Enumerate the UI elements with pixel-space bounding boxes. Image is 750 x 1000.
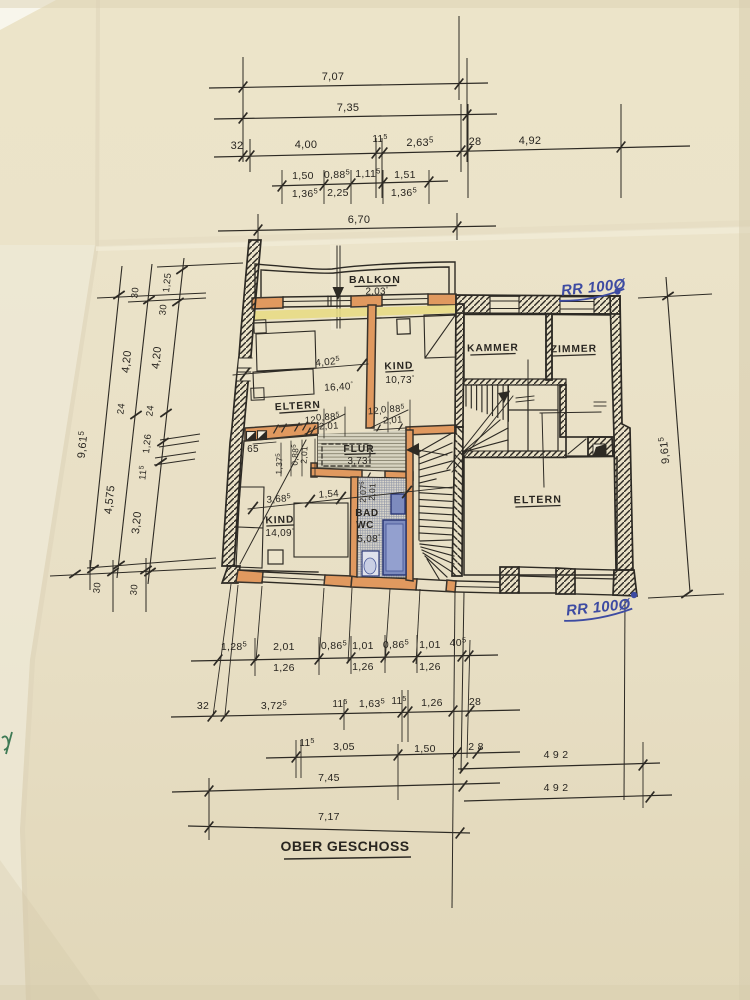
svg-text:BAD: BAD <box>355 508 378 519</box>
svg-text:2,25: 2,25 <box>327 187 349 199</box>
svg-text:3,05: 3,05 <box>333 741 355 753</box>
svg-text:1,50: 1,50 <box>292 170 314 182</box>
svg-text:1,50: 1,50 <box>414 743 436 755</box>
svg-text:10,73°​: 10,73°​ <box>385 374 415 386</box>
svg-text:4,00: 4,00 <box>295 139 318 151</box>
svg-text:4,20: 4,20 <box>120 350 134 374</box>
svg-text:1,26: 1,26 <box>421 697 443 709</box>
svg-text:16,40°​: 16,40°​ <box>324 381 354 394</box>
svg-text:7,07: 7,07 <box>322 71 345 83</box>
svg-text:4,92: 4,92 <box>519 135 542 147</box>
svg-text:1,26: 1,26 <box>352 661 374 673</box>
svg-text:1,51: 1,51 <box>394 169 416 181</box>
svg-text:1,26: 1,26 <box>419 661 441 673</box>
svg-text:OBER GESCHOSS: OBER GESCHOSS <box>281 838 410 854</box>
svg-text:7,45: 7,45 <box>318 772 340 784</box>
svg-text:4 9 2: 4 9 2 <box>544 782 569 794</box>
svg-text:24: 24 <box>115 403 127 415</box>
svg-text:32: 32 <box>197 700 209 712</box>
svg-text:2,01: 2,01 <box>367 483 378 501</box>
svg-text:3,20: 3,20 <box>130 511 144 535</box>
svg-text:2 8: 2 8 <box>468 741 484 753</box>
svg-text:30: 30 <box>129 287 141 299</box>
svg-text:7,17: 7,17 <box>318 811 340 823</box>
svg-text:14,09°​: 14,09°​ <box>265 527 295 539</box>
svg-text:BALKON: BALKON <box>349 274 401 286</box>
svg-text:5,08°​: 5,08°​ <box>357 533 381 545</box>
svg-text:30: 30 <box>91 582 103 594</box>
svg-text:1,26: 1,26 <box>141 433 154 454</box>
svg-text:7,35: 7,35 <box>337 102 360 114</box>
svg-text:2,01: 2,01 <box>273 641 295 653</box>
svg-text:1,54: 1,54 <box>318 488 339 500</box>
svg-text:28: 28 <box>469 696 481 708</box>
svg-text:12,: 12, <box>305 415 320 427</box>
svg-text:32: 32 <box>231 140 244 152</box>
svg-text:6,70: 6,70 <box>348 214 371 226</box>
svg-text:2,01: 2,01 <box>299 446 310 464</box>
svg-text:ELTERN: ELTERN <box>514 494 563 507</box>
svg-text:1,01: 1,01 <box>419 639 441 651</box>
svg-text:WC: WC <box>356 520 374 531</box>
svg-text:65: 65 <box>247 444 259 455</box>
svg-text:4,20: 4,20 <box>150 346 164 370</box>
svg-text:12,: 12, <box>368 406 383 418</box>
svg-text:3,73°​: 3,73°​ <box>347 456 370 468</box>
svg-text:30: 30 <box>157 304 169 316</box>
svg-text:ZIMMER: ZIMMER <box>551 344 597 356</box>
svg-text:4 9 2: 4 9 2 <box>544 749 569 761</box>
svg-text:24: 24 <box>144 405 156 417</box>
svg-text:30: 30 <box>128 584 140 596</box>
svg-text:28: 28 <box>469 136 482 148</box>
svg-text:1,26: 1,26 <box>273 662 295 674</box>
svg-text:1,01: 1,01 <box>352 640 374 652</box>
svg-text:KAMMER: KAMMER <box>467 343 519 355</box>
svg-text:1,25: 1,25 <box>161 272 174 293</box>
